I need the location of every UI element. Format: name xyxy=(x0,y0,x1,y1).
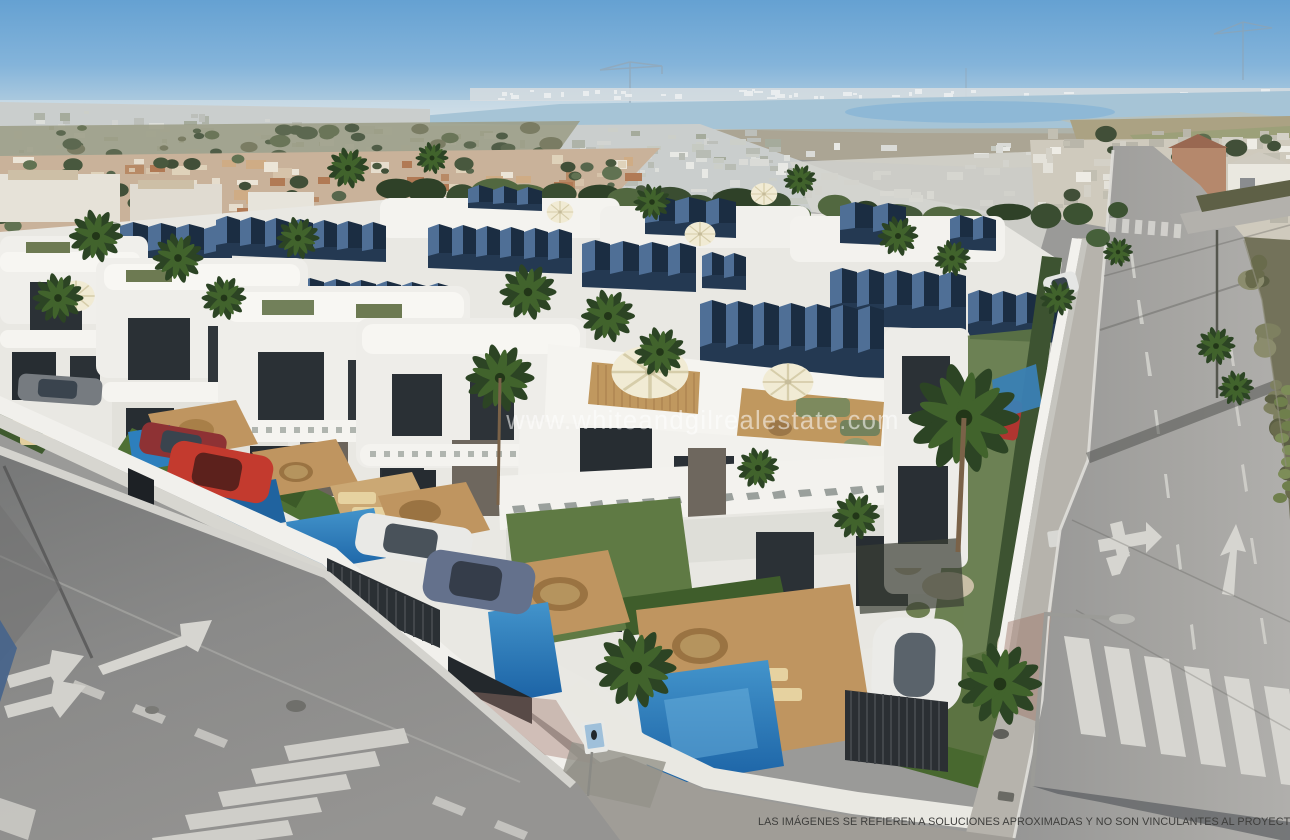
svg-text:LAS IMÁGENES SE REFIEREN A SOL: LAS IMÁGENES SE REFIEREN A SOLUCIONES AP… xyxy=(758,815,1290,828)
svg-text:www.whiteandgilrealestate.com: www.whiteandgilrealestate.com xyxy=(505,407,899,435)
